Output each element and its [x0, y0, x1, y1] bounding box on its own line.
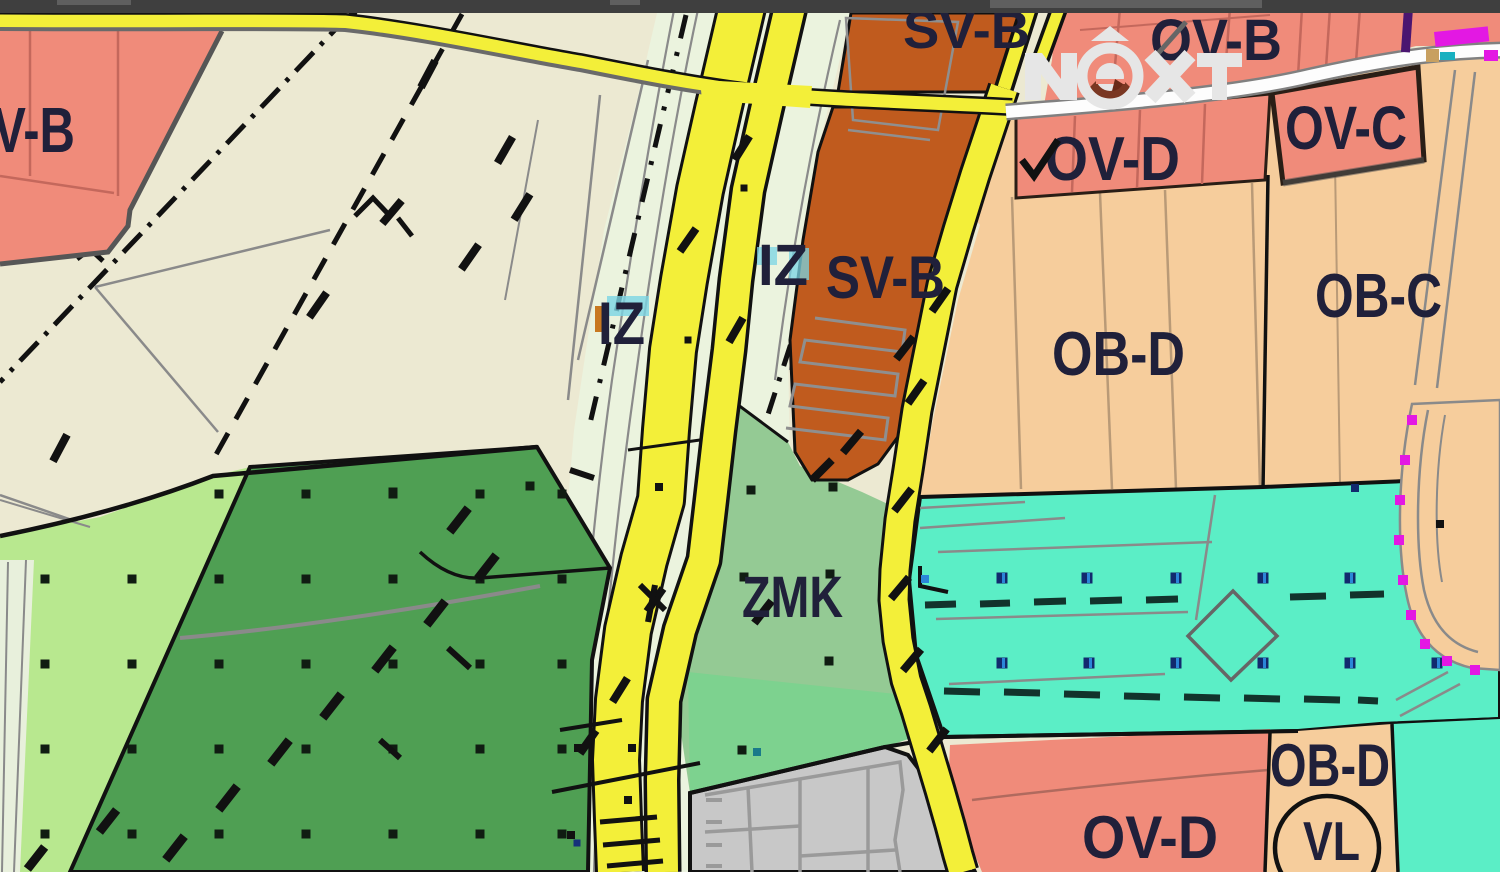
- svg-text:SV-B: SV-B: [826, 244, 945, 311]
- svg-text:IZ: IZ: [598, 290, 645, 357]
- svg-text:IZ: IZ: [758, 233, 808, 298]
- svg-text:OV-B: OV-B: [0, 94, 75, 166]
- svg-text:ZMK: ZMK: [742, 565, 843, 630]
- svg-text:OB-C: OB-C: [1315, 262, 1442, 331]
- svg-text:VL: VL: [1303, 810, 1360, 872]
- svg-text:OB-D: OB-D: [1052, 320, 1185, 389]
- svg-text:OV-C: OV-C: [1285, 94, 1407, 162]
- svg-text:OV-D: OV-D: [1045, 125, 1180, 194]
- svg-text:OB-D: OB-D: [1270, 732, 1390, 799]
- svg-text:OV-D: OV-D: [1082, 804, 1218, 871]
